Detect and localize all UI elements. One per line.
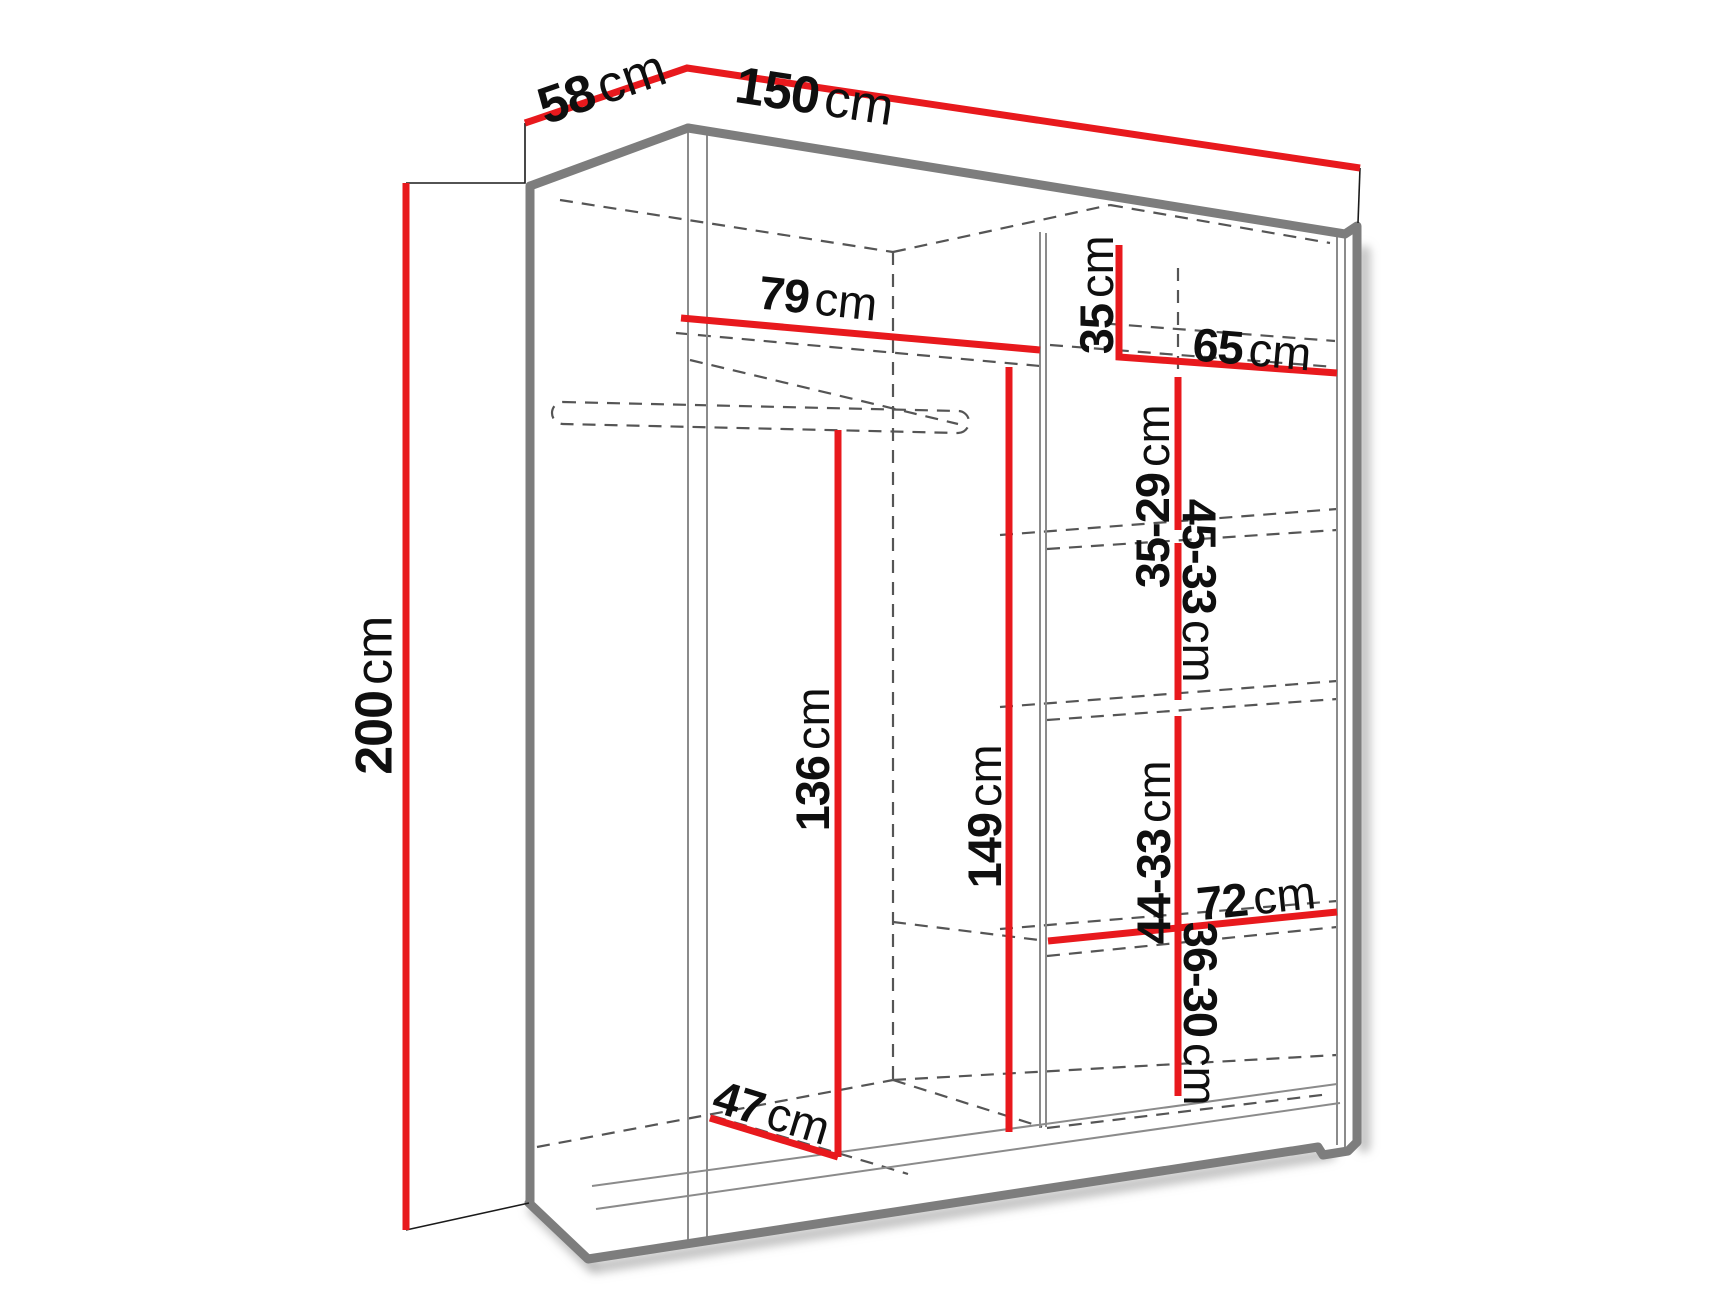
connector-top-left xyxy=(406,123,525,183)
dimension-unit: cm xyxy=(1250,865,1318,924)
dimension-value: 45-33 xyxy=(1173,499,1226,614)
dimension-unit: cm xyxy=(812,271,880,330)
dimension-label-right-gap-1: 35-29cm xyxy=(1126,404,1179,588)
wardrobe-dimension-diagram: 58cm150cm200cm79cm35cm65cm35-29cm45-33cm… xyxy=(0,0,1726,1295)
dimension-unit: cm xyxy=(1247,322,1314,380)
dimension-value: 36-30 xyxy=(1174,922,1227,1037)
dimension-unit: cm xyxy=(820,69,897,137)
dimension-unit: cm xyxy=(1174,1043,1227,1106)
dimension-label-right-shelf-width: 65cm xyxy=(1191,317,1314,380)
cabinet-body xyxy=(525,68,1360,1259)
dimension-unit: cm xyxy=(1070,235,1123,298)
dimension-label-top-right-shelf-height: 35cm xyxy=(1070,235,1123,354)
dimension-value: 150 xyxy=(732,56,823,126)
dimension-unit: cm xyxy=(1126,404,1179,467)
dimension-value: 65 xyxy=(1191,317,1246,374)
dimension-label-right-gap-4: 36-30cm xyxy=(1174,922,1227,1106)
dimension-label-hanging-space-height: 136cm xyxy=(786,687,839,831)
dimension-unit: cm xyxy=(1127,760,1180,823)
connector-bottom-left xyxy=(406,1203,529,1230)
dimension-label-height-overall: 200cm xyxy=(346,616,404,775)
dimension-value: 35 xyxy=(1070,304,1123,354)
dimension-label-right-gap-3: 44-33cm xyxy=(1127,760,1180,944)
dimension-value: 149 xyxy=(958,813,1011,888)
dimension-unit: cm xyxy=(346,616,404,685)
dimension-unit: cm xyxy=(786,687,839,750)
dimension-value: 200 xyxy=(346,691,404,775)
dimension-value: 79 xyxy=(756,265,812,323)
dimension-unit: cm xyxy=(958,744,1011,807)
dimension-unit: cm xyxy=(1173,620,1226,683)
dimension-value: 35-29 xyxy=(1126,473,1179,588)
dimension-value: 44-33 xyxy=(1127,829,1180,944)
dimension-label-left-inner-height: 149cm xyxy=(958,744,1011,888)
dimension-value: 136 xyxy=(786,756,839,831)
wardrobe-diagram-canvas: 58cm150cm200cm79cm35cm65cm35-29cm45-33cm… xyxy=(0,0,1726,1295)
dimension-label-right-gap-2: 45-33cm xyxy=(1173,499,1226,683)
